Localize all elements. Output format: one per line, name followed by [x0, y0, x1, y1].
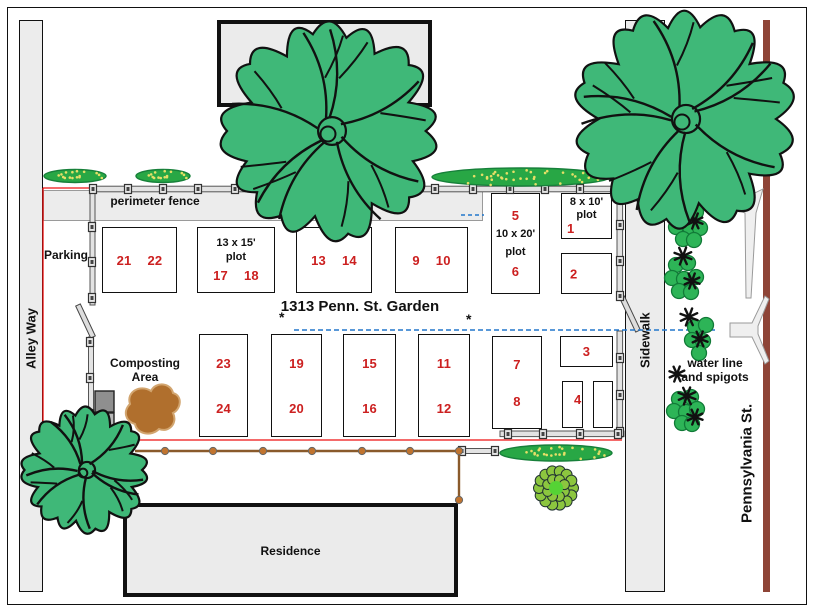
plot-number: 10 — [436, 253, 451, 268]
sidewalk-strip — [625, 20, 665, 592]
plot-19-20: 19 20 — [271, 334, 322, 437]
plot-size-label: 13 x 15' — [216, 237, 255, 250]
plot-size-label: plot — [226, 251, 246, 264]
plot-number: 21 — [117, 253, 132, 268]
plot-1: 8 x 10' plot 1 — [561, 193, 612, 239]
residence-top: Residence — [217, 20, 432, 107]
plot-numbers: 17 18 — [213, 268, 259, 283]
plot-21-22: 21 22 — [102, 227, 177, 293]
plot-number: 2 — [570, 266, 577, 281]
plot-number: 19 — [289, 356, 304, 371]
plot-number: 11 — [437, 356, 451, 371]
plot-3: 3 — [560, 336, 613, 367]
plot-number: 17 — [213, 268, 228, 283]
plot-number: 13 — [311, 253, 326, 268]
garden-site-plan: Residence Residence 21 22 13 x 15' plot … — [0, 0, 814, 612]
plot-number: 23 — [216, 356, 231, 371]
plot-number: 22 — [148, 253, 163, 268]
plot-number: 15 — [362, 356, 377, 371]
perimeter-fence-band — [43, 190, 483, 221]
pennsylvania-street-line — [763, 20, 770, 592]
plot-number: 14 — [342, 253, 357, 268]
plot-number: 1 — [567, 221, 574, 236]
plot-4-left-bed — [562, 381, 583, 428]
plot-number: 7 — [513, 357, 520, 372]
plot-4-right-bed — [593, 381, 613, 428]
plot-number: 6 — [512, 264, 519, 279]
plot-size-label: 10 x 20' — [496, 228, 535, 241]
plot-23-24: 23 24 — [199, 334, 248, 437]
plot-7-8: 7 8 — [492, 336, 542, 429]
plot-number: 20 — [289, 401, 304, 416]
plot-number: 8 — [513, 394, 520, 409]
plot-size-label: 8 x 10' plot — [562, 196, 611, 222]
plot-number: 3 — [583, 344, 590, 359]
plot-11-12: 11 12 — [418, 334, 470, 437]
residence-top-label: Residence — [294, 36, 354, 103]
alley-way-strip — [19, 20, 43, 592]
plot-5-6: 5 10 x 20' plot 6 — [491, 193, 540, 294]
plot-number: 5 — [512, 208, 519, 223]
residence-bottom-label: Residence — [260, 544, 320, 593]
plot-number: 18 — [244, 268, 259, 283]
plot-number: 24 — [216, 401, 231, 416]
plot-9-10: 9 10 — [395, 227, 468, 293]
plot-15-16: 15 16 — [343, 334, 396, 437]
plot-17-18: 13 x 15' plot 17 18 — [197, 227, 275, 293]
plot-number: 9 — [412, 253, 419, 268]
plot-13-14: 13 14 — [296, 227, 372, 293]
residence-bottom: Residence — [123, 503, 458, 597]
plot-size-label: plot — [505, 246, 525, 259]
plot-number: 12 — [437, 401, 452, 416]
plot-2: 2 — [561, 253, 612, 294]
plot-number: 16 — [362, 401, 377, 416]
